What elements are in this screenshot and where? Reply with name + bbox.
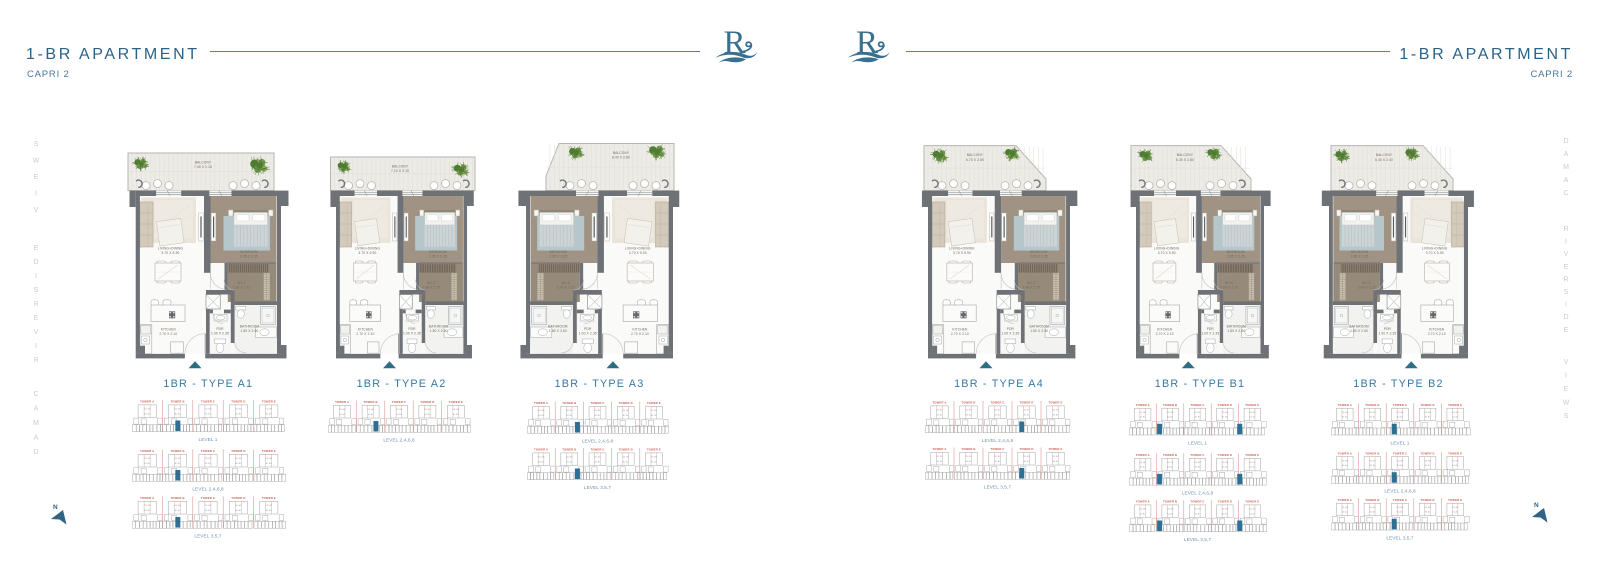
svg-text:TOWER B: TOWER B [1365,498,1379,502]
svg-text:PDR: PDR [1007,327,1015,331]
svg-text:TOWER A: TOWER A [140,449,154,453]
svg-text:TOWER E: TOWER E [1448,403,1462,407]
svg-text:LEVEL 2,4,6,8: LEVEL 2,4,6,8 [982,438,1014,443]
svg-text:KITCHEN: KITCHEN [952,327,968,331]
svg-text:BATHROOM: BATHROOM [1030,325,1050,329]
svg-text:D: D [33,449,38,456]
svg-text:2.00 X 2.15: 2.00 X 2.15 [1358,286,1376,290]
svg-text:BATHROOM: BATHROOM [429,325,449,329]
svg-text:CD GD: CD GD [1167,412,1174,414]
svg-text:TOWER E: TOWER E [262,496,276,500]
svg-text:TOWER C: TOWER C [392,400,406,404]
svg-text:TOWER D: TOWER D [1218,500,1232,504]
svg-text:CD GD: CD GD [994,456,1001,458]
svg-text:C: C [33,391,38,398]
svg-text:I: I [35,273,37,280]
svg-text:CD GD: CD GD [1249,462,1256,464]
svg-text:TOWER E: TOWER E [1245,453,1259,457]
svg-text:S: S [1564,413,1569,420]
svg-text:CD GD: CD GD [650,457,657,459]
svg-text:R: R [1563,226,1568,233]
svg-text:TOWER A: TOWER A [534,401,548,405]
svg-text:1BR - TYPE A2: 1BR - TYPE A2 [357,378,447,390]
svg-text:E: E [1564,264,1569,271]
svg-text:TOWER A: TOWER A [932,401,946,405]
svg-text:CD GD: CD GD [965,410,972,412]
svg-text:TOWER D: TOWER D [1420,451,1434,455]
svg-text:CD GD: CD GD [235,458,242,460]
svg-text:BATHROOM: BATHROOM [548,325,568,329]
svg-text:KITCHEN: KITCHEN [1429,327,1445,331]
svg-text:TOWER D: TOWER D [231,400,245,404]
svg-text:CD GD: CD GD [1452,460,1459,462]
svg-text:CD GD: CD GD [1194,462,1201,464]
svg-text:TOWER E: TOWER E [1048,401,1062,405]
svg-text:CD GD: CD GD [265,409,272,411]
svg-text:CD GD: CD GD [622,410,629,412]
svg-text:E: E [34,245,39,252]
svg-text:CD GD: CD GD [1194,509,1201,511]
svg-text:CAPRI 2: CAPRI 2 [1530,69,1573,80]
svg-text:I: I [35,191,37,198]
svg-text:CD GD: CD GD [1424,507,1431,509]
svg-text:S: S [1564,289,1569,296]
svg-text:CD GD: CD GD [452,409,459,411]
svg-text:LEVEL 2,4,6,8: LEVEL 2,4,6,8 [192,487,224,492]
svg-text:1.80 X 2.60: 1.80 X 2.60 [430,329,448,333]
svg-text:TOWER B: TOWER B [1365,403,1379,407]
svg-text:CD GD: CD GD [265,505,272,507]
svg-text:3.95 X 3.35: 3.95 X 3.35 [1030,254,1048,258]
svg-text:2.70 X 2.10: 2.70 X 2.10 [631,332,649,336]
svg-text:PDR: PDR [216,327,224,331]
svg-text:CD GD: CD GD [144,505,151,507]
svg-text:CD GD: CD GD [1221,462,1228,464]
svg-text:CD GD: CD GD [1139,509,1146,511]
svg-text:CD GD: CD GD [1341,460,1348,462]
svg-text:CD GD: CD GD [1452,507,1459,509]
svg-text:TOWER C: TOWER C [1393,451,1407,455]
svg-text:V: V [34,329,39,336]
svg-text:BATHROOM: BATHROOM [1349,325,1369,329]
svg-text:CD GD: CD GD [622,457,629,459]
svg-text:LIVING+DINING: LIVING+DINING [625,247,651,251]
svg-text:W: W [33,158,40,165]
svg-text:TOWER C: TOWER C [1190,403,1204,407]
svg-text:S: S [34,141,39,148]
svg-text:CD GD: CD GD [1023,410,1030,412]
svg-text:7.10 X 2.15: 7.10 X 2.15 [391,169,409,173]
svg-text:LEVEL 2,4,6,8: LEVEL 2,4,6,8 [1182,490,1214,495]
svg-text:CD GD: CD GD [1341,412,1348,414]
svg-text:CD GD: CD GD [1424,412,1431,414]
svg-text:LEVEL 1: LEVEL 1 [198,437,217,442]
svg-text:E: E [34,315,39,322]
svg-text:TOWER A: TOWER A [932,447,946,451]
svg-text:TOWER E: TOWER E [1245,403,1259,407]
svg-text:1.00 X 2.35: 1.00 X 2.35 [1378,332,1396,336]
svg-text:TOWER A: TOWER A [534,448,548,452]
svg-text:W.I.C: W.I.C [427,281,436,285]
svg-text:D: D [1563,138,1568,145]
svg-text:TOWER C: TOWER C [590,401,604,405]
svg-text:3.70 X 5.90: 3.70 X 5.90 [953,251,971,255]
svg-text:A: A [34,435,39,442]
svg-text:TOWER D: TOWER D [1218,403,1232,407]
svg-text:CD GD: CD GD [1369,412,1376,414]
svg-text:3.70 X 5.90: 3.70 X 5.90 [162,251,180,255]
svg-text:3.70 X 5.90: 3.70 X 5.90 [358,251,376,255]
svg-text:V: V [1564,359,1569,366]
svg-text:3.95 X 3.35: 3.95 X 3.35 [240,254,258,258]
svg-text:3.70 X 5.90: 3.70 X 5.90 [1426,251,1444,255]
svg-text:2.70 X 2.10: 2.70 X 2.10 [356,332,374,336]
svg-text:CD GD: CD GD [1369,460,1376,462]
svg-text:LEVEL 2,4,6,8: LEVEL 2,4,6,8 [582,439,614,444]
svg-text:TOWER D: TOWER D [420,400,434,404]
svg-text:BEDROOM: BEDROOM [550,250,568,254]
svg-text:6.40 X 2.40: 6.40 X 2.40 [1375,158,1393,162]
svg-text:TOWER A: TOWER A [1338,498,1352,502]
svg-text:TOWER C: TOWER C [1393,498,1407,502]
svg-text:BALCONY: BALCONY [613,151,630,155]
svg-text:3.70 X 5.90: 3.70 X 5.90 [1158,251,1176,255]
svg-text:BALCONY: BALCONY [392,165,409,169]
svg-text:CD GD: CD GD [994,410,1001,412]
svg-text:1BR - TYPE B2: 1BR - TYPE B2 [1353,378,1443,390]
svg-text:BEDROOM: BEDROOM [429,250,447,254]
svg-text:TOWER D: TOWER D [1019,447,1033,451]
svg-text:M: M [33,420,39,427]
svg-text:TOWER C: TOWER C [201,449,215,453]
svg-text:A: A [34,406,39,413]
svg-text:M: M [1563,164,1569,171]
svg-text:TOWER A: TOWER A [1136,453,1150,457]
svg-text:CD GD: CD GD [235,409,242,411]
svg-text:LEVEL 3,5,7: LEVEL 3,5,7 [194,534,222,539]
svg-text:TOWER B: TOWER B [170,496,184,500]
svg-text:1.80 X 2.60: 1.80 X 2.60 [549,329,567,333]
svg-text:TOWER A: TOWER A [1136,403,1150,407]
svg-text:TOWER B: TOWER B [562,448,576,452]
svg-text:N: N [1534,502,1539,509]
svg-text:1.00 X 2.35: 1.00 X 2.35 [579,332,597,336]
svg-text:TOWER E: TOWER E [1448,451,1462,455]
svg-text:I: I [35,343,37,350]
svg-text:E: E [1564,386,1569,393]
svg-text:CD GD: CD GD [538,410,545,412]
svg-text:W: W [1563,400,1570,407]
svg-text:TOWER B: TOWER B [1365,451,1379,455]
svg-text:7.40 X 2.15: 7.40 X 2.15 [194,165,212,169]
svg-text:TOWER E: TOWER E [262,400,276,404]
svg-text:TOWER D: TOWER D [1420,403,1434,407]
svg-text:1.00 X 2.35: 1.00 X 2.35 [211,332,229,336]
svg-text:1.00 X 2.35: 1.00 X 2.35 [1201,332,1219,336]
svg-text:LEVEL 3,5,7: LEVEL 3,5,7 [984,485,1012,490]
svg-text:TOWER A: TOWER A [1338,403,1352,407]
svg-text:W.I.C: W.I.C [1225,281,1234,285]
svg-text:S: S [34,287,39,294]
svg-text:CD GD: CD GD [174,458,181,460]
svg-text:W.I.C: W.I.C [1362,281,1371,285]
svg-text:LIVING+DINING: LIVING+DINING [1154,247,1180,251]
svg-text:TOWER C: TOWER C [1393,403,1407,407]
svg-text:1.80 X 2.60: 1.80 X 2.60 [1350,329,1368,333]
svg-text:CD GD: CD GD [1167,462,1174,464]
svg-text:1.80 X 2.60: 1.80 X 2.60 [241,329,259,333]
svg-text:CD GD: CD GD [1369,507,1376,509]
svg-text:TOWER B: TOWER B [1163,500,1177,504]
svg-text:CD GD: CD GD [1397,412,1404,414]
svg-text:CD GD: CD GD [650,410,657,412]
svg-text:TOWER C: TOWER C [590,448,604,452]
svg-text:TOWER A: TOWER A [140,400,154,404]
svg-text:TOWER B: TOWER B [363,400,377,404]
svg-text:CD GD: CD GD [1139,412,1146,414]
svg-text:CD GD: CD GD [1249,412,1256,414]
svg-text:LIVING+DINING: LIVING+DINING [158,247,184,251]
svg-text:1BR - TYPE A3: 1BR - TYPE A3 [555,378,645,390]
svg-text:TOWER E: TOWER E [449,400,463,404]
svg-text:I: I [1565,239,1567,246]
svg-text:KITCHEN: KITCHEN [632,327,648,331]
svg-text:LEVEL 2,4,6,8: LEVEL 2,4,6,8 [383,438,415,443]
svg-text:CD GD: CD GD [1452,412,1459,414]
svg-text:1.00 X 2.35: 1.00 X 2.35 [1001,332,1019,336]
svg-text:KITCHEN: KITCHEN [161,327,177,331]
svg-text:N: N [53,504,58,511]
svg-text:2.00 X 2.15: 2.00 X 2.15 [1220,286,1238,290]
svg-text:CD GD: CD GD [265,458,272,460]
svg-text:1-BR APARTMENT: 1-BR APARTMENT [26,46,200,63]
svg-text:E: E [1564,327,1569,334]
svg-text:1.80 X 2.60: 1.80 X 2.60 [1227,329,1245,333]
svg-text:CD GD: CD GD [1052,456,1059,458]
svg-text:A: A [1564,177,1569,184]
svg-text:PDR: PDR [1207,327,1215,331]
svg-text:3.95 X 3.35: 3.95 X 3.35 [429,254,447,258]
svg-text:LEVEL 2,4,6,8: LEVEL 2,4,6,8 [1384,489,1416,494]
svg-text:TOWER B: TOWER B [562,401,576,405]
svg-text:CD GD: CD GD [424,409,431,411]
svg-text:CD GD: CD GD [1341,507,1348,509]
svg-text:TOWER B: TOWER B [1163,453,1177,457]
svg-text:C: C [1563,190,1568,197]
svg-text:1-BR APARTMENT: 1-BR APARTMENT [1399,46,1573,63]
svg-text:TOWER D: TOWER D [1218,453,1232,457]
svg-text:R: R [33,301,38,308]
svg-text:TOWER E: TOWER E [262,449,276,453]
svg-text:TOWER A: TOWER A [140,496,154,500]
svg-text:CD GD: CD GD [936,410,943,412]
svg-text:CD GD: CD GD [144,458,151,460]
svg-text:V: V [34,207,39,214]
svg-text:CD GD: CD GD [538,457,545,459]
svg-text:TOWER A: TOWER A [335,400,349,404]
svg-text:CD GD: CD GD [566,457,573,459]
svg-text:2.70 X 2.10: 2.70 X 2.10 [951,332,969,336]
svg-text:CD GD: CD GD [566,410,573,412]
svg-text:TOWER D: TOWER D [1019,401,1033,405]
svg-text:LEVEL 3,5,7: LEVEL 3,5,7 [584,485,612,490]
svg-text:TOWER B: TOWER B [170,400,184,404]
svg-text:W.I.C: W.I.C [237,281,246,285]
svg-text:TOWER C: TOWER C [1190,453,1204,457]
svg-text:TOWER B: TOWER B [170,449,184,453]
svg-text:TOWER D: TOWER D [619,401,633,405]
svg-text:E: E [34,174,39,181]
svg-text:2.00 X 2.15: 2.00 X 2.15 [1023,286,1041,290]
svg-text:I: I [1565,302,1567,309]
svg-text:2.00 X 2.15: 2.00 X 2.15 [423,286,441,290]
svg-text:BALCONY: BALCONY [1177,153,1194,157]
svg-text:1BR - TYPE A4: 1BR - TYPE A4 [954,378,1044,390]
svg-text:TOWER A: TOWER A [1338,451,1352,455]
svg-text:CD GD: CD GD [1139,462,1146,464]
svg-text:CD GD: CD GD [174,505,181,507]
svg-text:TOWER B: TOWER B [961,401,975,405]
svg-text:BEDROOM: BEDROOM [1030,250,1048,254]
svg-text:CD GD: CD GD [174,409,181,411]
svg-text:TOWER A: TOWER A [1136,500,1150,504]
svg-text:2.00 X 2.15: 2.00 X 2.15 [557,286,575,290]
svg-text:6.30 X 2.80: 6.30 X 2.80 [1176,158,1194,162]
svg-text:TOWER E: TOWER E [1448,498,1462,502]
svg-text:CD GD: CD GD [1052,410,1059,412]
svg-text:TOWER E: TOWER E [1245,500,1259,504]
svg-text:R: R [1563,276,1568,283]
svg-text:BALCONY: BALCONY [967,153,984,157]
svg-text:A: A [1564,151,1569,158]
svg-text:CD GD: CD GD [1397,460,1404,462]
svg-text:CD GD: CD GD [1023,456,1030,458]
svg-text:BEDROOM: BEDROOM [240,250,258,254]
svg-text:I: I [1565,373,1567,380]
svg-text:CD GD: CD GD [205,505,212,507]
svg-text:TOWER C: TOWER C [1190,500,1204,504]
svg-text:CD GD: CD GD [1221,509,1228,511]
svg-text:CD GD: CD GD [936,456,943,458]
svg-text:1BR - TYPE A1: 1BR - TYPE A1 [163,378,253,390]
svg-text:CD GD: CD GD [1424,460,1431,462]
svg-text:TOWER E: TOWER E [647,401,661,405]
svg-text:2.00 X 2.15: 2.00 X 2.15 [233,286,251,290]
svg-text:3.95 X 3.35: 3.95 X 3.35 [549,254,567,258]
svg-text:3.95 X 3.35: 3.95 X 3.35 [1227,254,1245,258]
svg-text:CD GD: CD GD [235,505,242,507]
svg-text:CD GD: CD GD [144,409,151,411]
svg-text:LIVING+DINING: LIVING+DINING [1422,247,1448,251]
svg-text:CD GD: CD GD [1249,509,1256,511]
svg-text:BALCONY: BALCONY [1376,153,1393,157]
svg-text:TOWER D: TOWER D [231,449,245,453]
svg-text:PDR: PDR [1384,327,1392,331]
svg-text:8.40 X 2.80: 8.40 X 2.80 [612,156,630,160]
svg-text:D: D [33,259,38,266]
svg-text:V: V [1564,251,1569,258]
svg-text:CD GD: CD GD [205,409,212,411]
svg-text:KITCHEN: KITCHEN [1157,327,1173,331]
svg-text:TOWER C: TOWER C [990,401,1004,405]
svg-text:3.70 X 5.90: 3.70 X 5.90 [629,251,647,255]
svg-text:1.80 X 2.60: 1.80 X 2.60 [1030,329,1048,333]
svg-text:BATHROOM: BATHROOM [240,325,260,329]
svg-text:TOWER C: TOWER C [201,496,215,500]
svg-text:TOWER B: TOWER B [961,447,975,451]
svg-text:BALCONY: BALCONY [195,161,212,165]
svg-text:CD GD: CD GD [1167,509,1174,511]
svg-text:CD GD: CD GD [1221,412,1228,414]
svg-text:PDR: PDR [408,327,416,331]
svg-text:CD GD: CD GD [1194,412,1201,414]
svg-text:CD GD: CD GD [594,457,601,459]
svg-text:BEDROOM: BEDROOM [1227,250,1245,254]
svg-text:CD GD: CD GD [367,409,374,411]
svg-text:CD GD: CD GD [339,409,346,411]
svg-text:2.70 X 2.10: 2.70 X 2.10 [1156,332,1174,336]
svg-text:KITCHEN: KITCHEN [358,327,374,331]
svg-text:TOWER D: TOWER D [1420,498,1434,502]
svg-text:BEDROOM: BEDROOM [1351,250,1369,254]
svg-text:TOWER E: TOWER E [647,448,661,452]
svg-text:TOWER C: TOWER C [990,447,1004,451]
svg-text:W.I.C: W.I.C [562,281,571,285]
svg-text:TOWER D: TOWER D [231,496,245,500]
svg-text:3.95 X 3.35: 3.95 X 3.35 [1351,254,1369,258]
svg-text:TOWER B: TOWER B [1163,403,1177,407]
svg-text:TOWER D: TOWER D [619,448,633,452]
svg-text:CD GD: CD GD [965,456,972,458]
svg-text:D: D [1563,314,1568,321]
svg-text:LEVEL 1: LEVEL 1 [1188,440,1207,445]
svg-text:2.70 X 2.10: 2.70 X 2.10 [159,332,177,336]
svg-text:CD GD: CD GD [1397,507,1404,509]
svg-text:CAPRI 2: CAPRI 2 [27,69,70,80]
svg-text:R: R [33,357,38,364]
svg-text:PDR: PDR [584,327,592,331]
svg-text:TOWER E: TOWER E [1048,447,1062,451]
svg-text:CD GD: CD GD [594,410,601,412]
svg-text:1.00 X 2.35: 1.00 X 2.35 [403,332,421,336]
svg-text:TOWER C: TOWER C [201,400,215,404]
svg-text:6.70 X 2.80: 6.70 X 2.80 [966,158,984,162]
svg-text:1BR - TYPE B1: 1BR - TYPE B1 [1155,378,1245,390]
svg-text:CD GD: CD GD [205,458,212,460]
svg-text:2.70 X 2.10: 2.70 X 2.10 [1428,332,1446,336]
svg-text:LIVING+DINING: LIVING+DINING [949,247,975,251]
svg-text:LIVING+DINING: LIVING+DINING [355,247,381,251]
svg-text:LEVEL 1: LEVEL 1 [1390,440,1409,445]
svg-text:LEVEL 3,5,7: LEVEL 3,5,7 [1184,537,1212,542]
svg-text:CD GD: CD GD [396,409,403,411]
svg-text:W.I.C: W.I.C [1027,281,1036,285]
svg-text:LEVEL 3,5,7: LEVEL 3,5,7 [1386,535,1414,540]
svg-text:BATHROOM: BATHROOM [1227,325,1247,329]
